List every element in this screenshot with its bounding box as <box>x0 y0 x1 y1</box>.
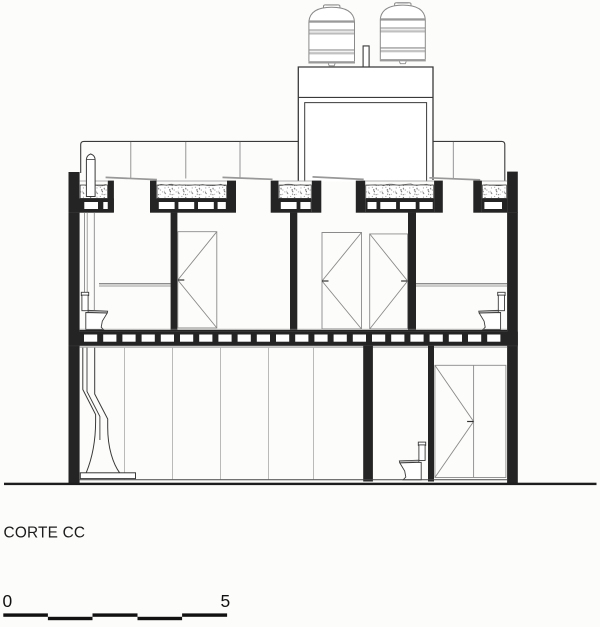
svg-text:CORTE CC: CORTE CC <box>4 525 86 542</box>
svg-text:5: 5 <box>221 591 231 611</box>
svg-text:0: 0 <box>3 591 13 611</box>
